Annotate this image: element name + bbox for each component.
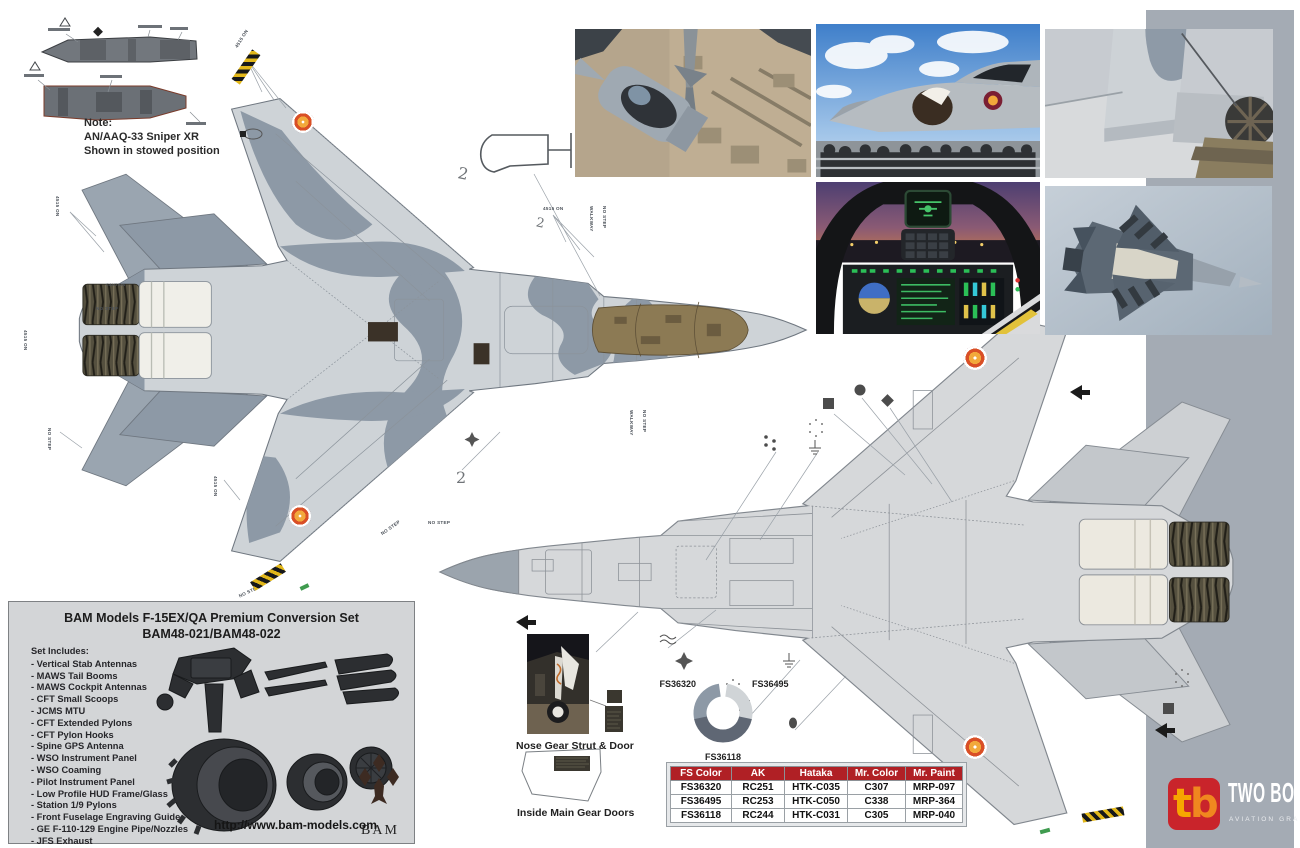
- stencil-label: 4515 ON: [55, 196, 60, 217]
- stencil-label: NO STEP: [96, 306, 118, 311]
- table-row: FS36118 RC244 HTK-C031 C305 MRP-040: [671, 809, 963, 823]
- two-bobs-logo: t b TWO BOBS AVIATION GRAPHICS: [1168, 776, 1286, 838]
- cell: RC244: [732, 809, 785, 823]
- bam-logo: [354, 752, 404, 820]
- photo-nose-gear: [527, 634, 589, 734]
- stencil-label: NO STEP: [602, 206, 607, 228]
- tb-badge: t b: [1168, 778, 1220, 830]
- cell: FS36495: [671, 795, 732, 809]
- main-gear-label: Inside Main Gear Doors: [517, 807, 634, 819]
- tb-letter-b: b: [1190, 784, 1219, 824]
- col-header: FS Color: [671, 767, 732, 781]
- photo-underside-flight: [1045, 186, 1272, 335]
- col-header: Mr. Paint: [906, 767, 963, 781]
- bam-logo-text: BAM: [361, 823, 399, 839]
- main-gear-door-outline: [522, 749, 601, 801]
- cell: HTK-C031: [785, 809, 848, 823]
- cell: MRP-040: [906, 809, 963, 823]
- fs36495-label: FS36495: [752, 679, 789, 689]
- stencil-label: CAUTION: [106, 283, 125, 287]
- cell: HTK-C050: [785, 795, 848, 809]
- fs-paint-wheel: [688, 678, 760, 750]
- stencil-number: 2: [456, 468, 466, 487]
- cell: MRP-097: [906, 781, 963, 795]
- paint-reference-table: FS Color AK Hataka Mr. Color Mr. Paint F…: [666, 762, 967, 827]
- qatar-roundel: [963, 735, 987, 759]
- table-row: FS36320 RC251 HTK-C035 C307 MRP-097: [671, 781, 963, 795]
- stencil-label: WALKWAY: [589, 206, 594, 232]
- cell: RC253: [732, 795, 785, 809]
- note-line1: AN/AAQ-33 Sniper XR: [84, 130, 220, 144]
- note-heading: Note:: [84, 116, 220, 130]
- photo-tail-closeup: [1045, 29, 1273, 178]
- col-header: Mr. Color: [848, 767, 906, 781]
- cell: MRP-364: [906, 795, 963, 809]
- bam-models-panel: BAM Models F-15EX/QA Premium Conversion …: [8, 601, 415, 844]
- stencil-label: NO STEP: [428, 520, 450, 525]
- fs36320-label: FS36320: [646, 679, 696, 689]
- stencil-label: NO STEP: [642, 410, 647, 432]
- qatar-roundel: [289, 505, 311, 527]
- col-header: Hataka: [785, 767, 848, 781]
- sniper-pod-note: Note: AN/AAQ-33 Sniper XR Shown in stowe…: [84, 116, 220, 158]
- cell: C338: [848, 795, 906, 809]
- table-header-row: FS Color AK Hataka Mr. Color Mr. Paint: [671, 767, 963, 781]
- bam-title: BAM Models F-15EX/QA Premium Conversion …: [9, 610, 414, 626]
- cell: HTK-C035: [785, 781, 848, 795]
- stencil-label: 4515 ON: [213, 476, 218, 497]
- nose-gear-decals: [590, 690, 623, 732]
- stencil-label: WALKWAY: [629, 410, 634, 436]
- bam-title-block: BAM Models F-15EX/QA Premium Conversion …: [9, 610, 414, 642]
- nose-gear-label: Nose Gear Strut & Door: [516, 740, 634, 752]
- col-header: AK: [732, 767, 785, 781]
- photo-aerial-refueling: [575, 29, 811, 177]
- cell: C307: [848, 781, 906, 795]
- cell: FS36320: [671, 781, 732, 795]
- two-bobs-tagline: AVIATION GRAPHICS: [1229, 816, 1300, 823]
- cell: C305: [848, 809, 906, 823]
- stencil-label: 4515 ON: [543, 206, 564, 211]
- cell: RC251: [732, 781, 785, 795]
- cell: FS36118: [671, 809, 732, 823]
- fs36118-label: FS36118: [690, 752, 756, 762]
- stencil-label: 4515 ON: [23, 330, 28, 351]
- qatar-roundel: [292, 111, 314, 133]
- table-row: FS36495 RC253 HTK-C050 C338 MRP-364: [671, 795, 963, 809]
- photo-cockpit: [816, 182, 1040, 334]
- stencil-label: NO STEP: [47, 428, 52, 450]
- two-bobs-name: TWO BOBS: [1228, 779, 1300, 811]
- note-line2: Shown in stowed position: [84, 144, 220, 158]
- qatar-roundel: [963, 346, 987, 370]
- bam-url[interactable]: http://www.bam-models.com: [214, 818, 377, 832]
- decal-instruction-sheet: 4515 ON 4515 ON 4515 ON NO STEP CAUTION …: [0, 0, 1300, 848]
- photo-static-display: [816, 24, 1040, 177]
